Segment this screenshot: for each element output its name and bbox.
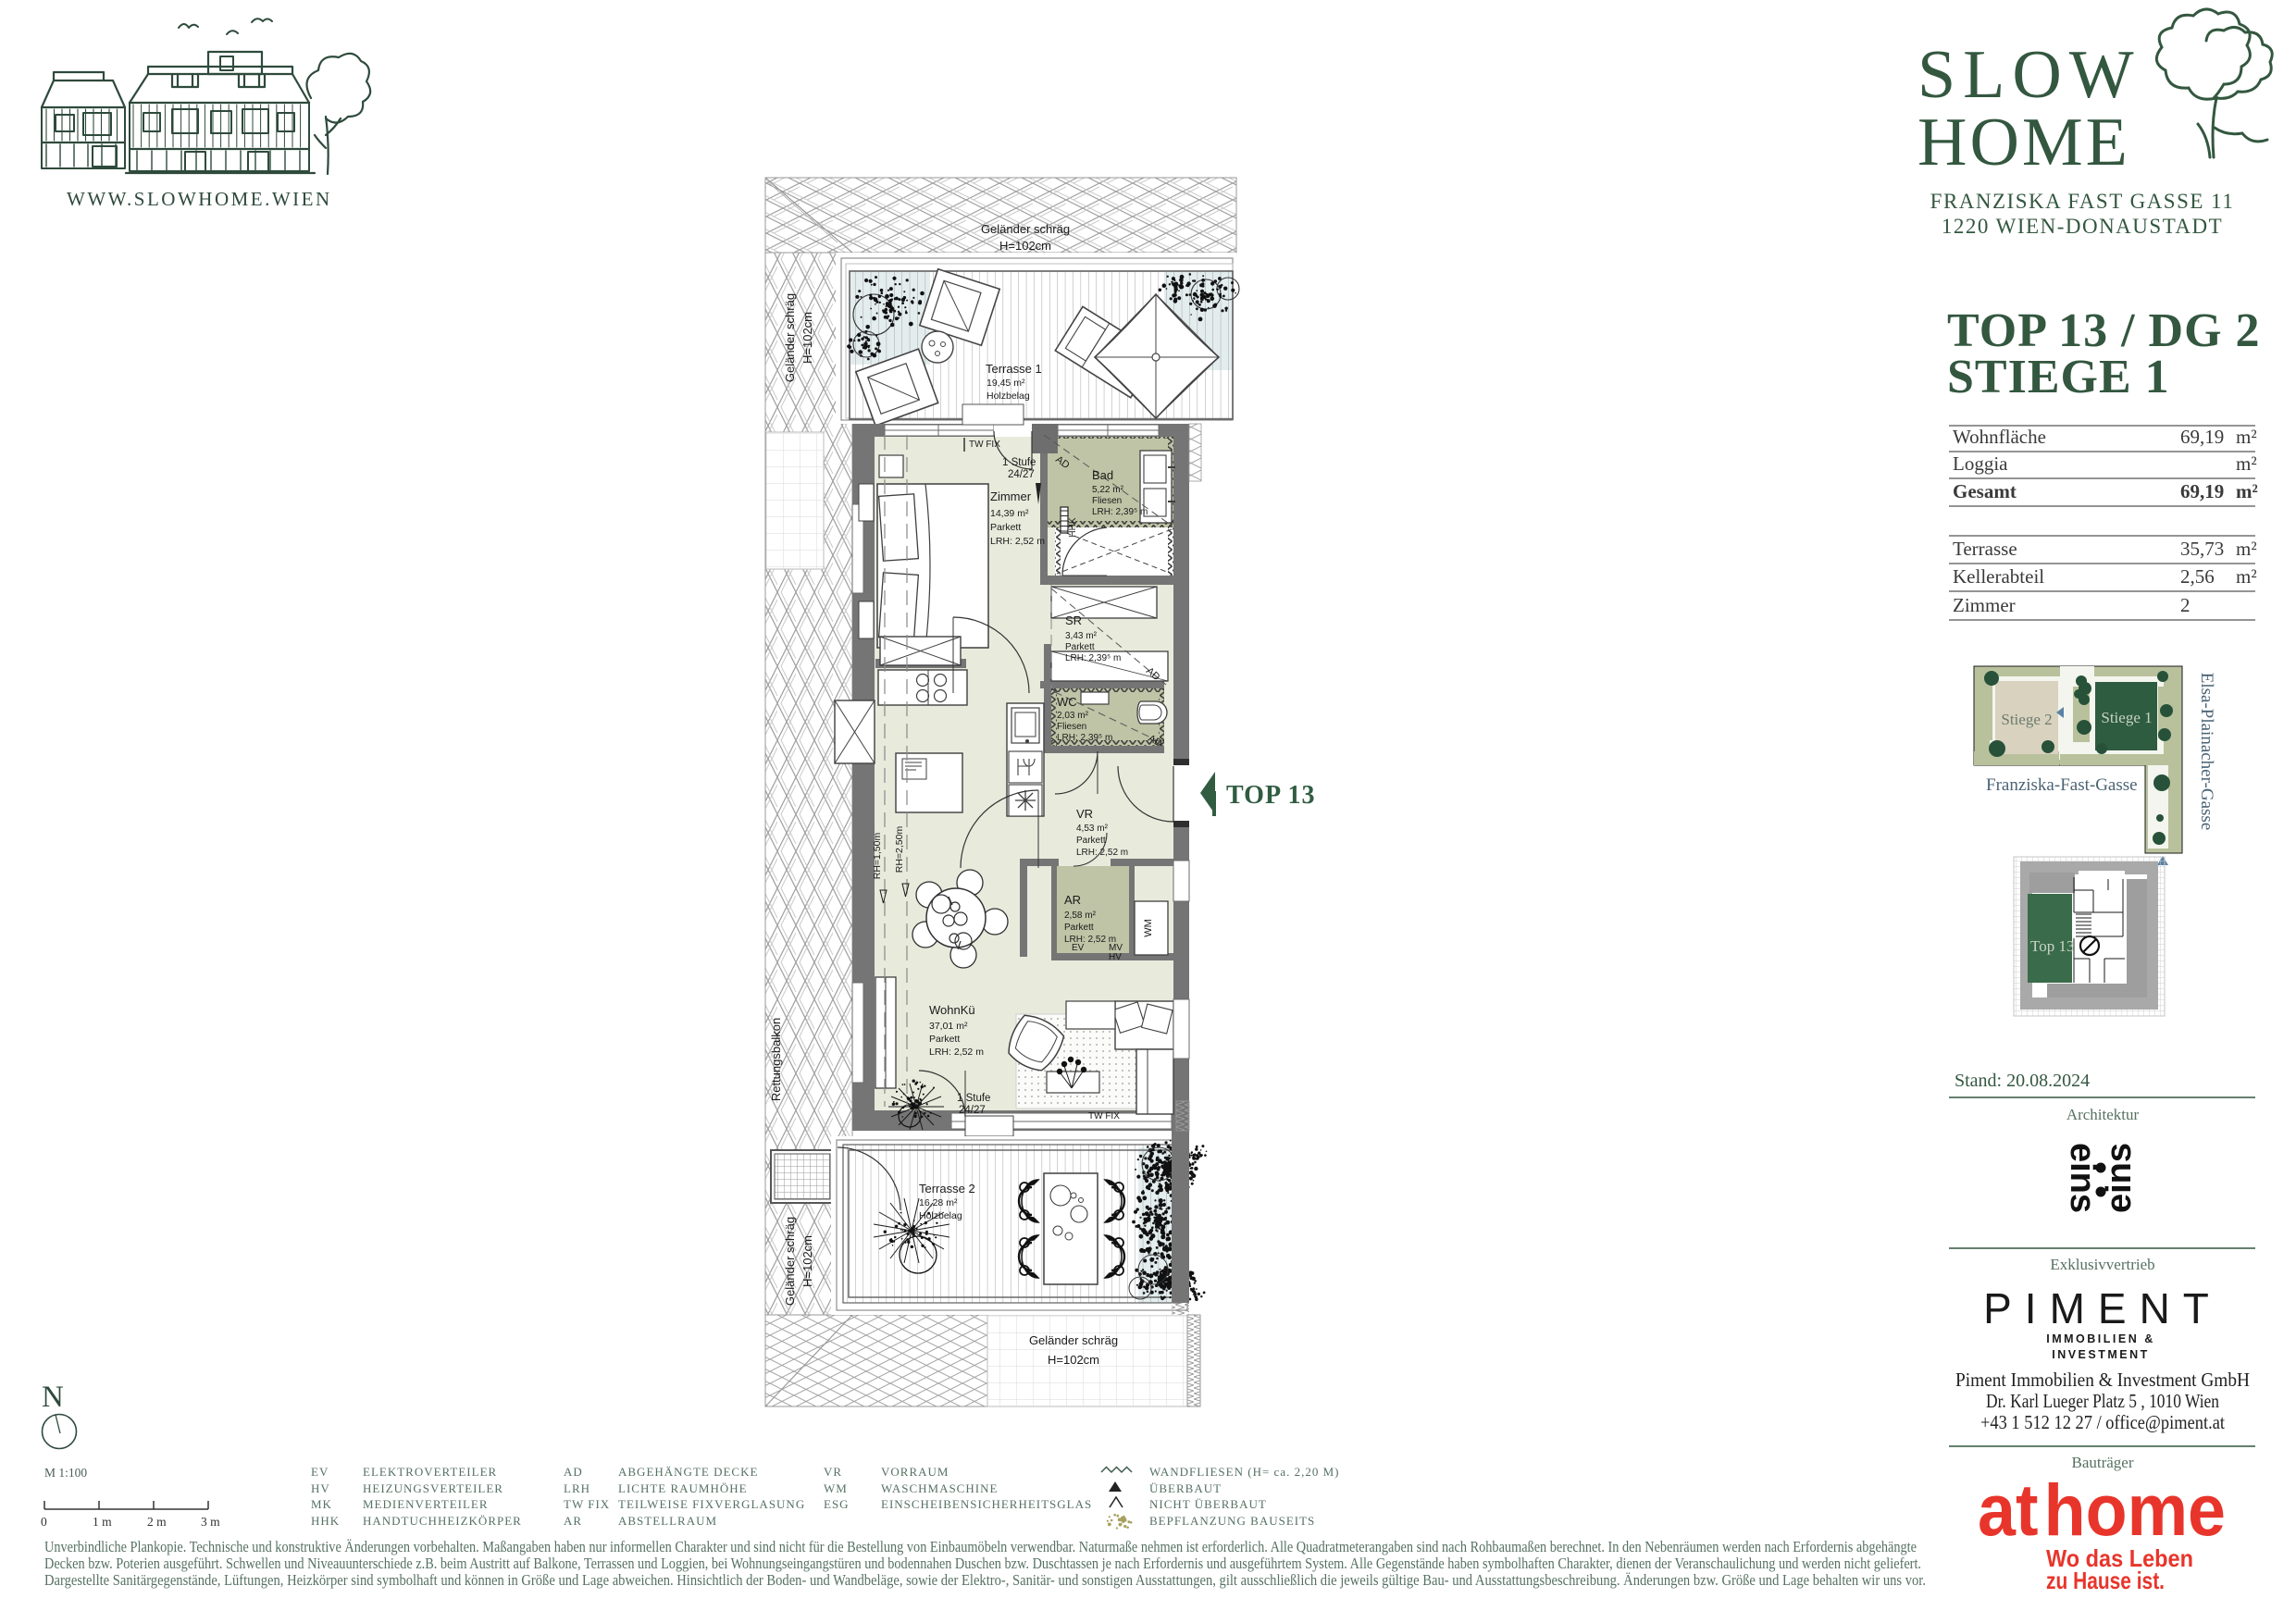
svg-text:LRH: 2,52 m: LRH: 2,52 m — [929, 1047, 984, 1058]
svg-text:1220 WIEN-DONAUSTADT: 1220 WIEN-DONAUSTADT — [1942, 215, 2223, 238]
svg-text:Stiege 2: Stiege 2 — [2001, 711, 2052, 728]
svg-text:Fliesen: Fliesen — [1092, 496, 1122, 506]
svg-text:24/27: 24/27 — [1008, 469, 1035, 480]
svg-text:Piment Immobilien & Investment: Piment Immobilien & Investment GmbH — [1955, 1369, 2250, 1391]
svg-text:Decken bzw. Poterien ausgeführ: Decken bzw. Poterien ausgeführt. Schwell… — [44, 1555, 1921, 1572]
svg-text:ELEKTROVERTEILER: ELEKTROVERTEILER — [363, 1465, 497, 1479]
svg-text:3,43 m²: 3,43 m² — [1065, 631, 1098, 641]
svg-text:WohnKü: WohnKü — [929, 1003, 975, 1017]
svg-text:BEPFLANZUNG BAUSEITS: BEPFLANZUNG BAUSEITS — [1149, 1514, 1315, 1528]
svg-text:WM: WM — [1143, 919, 1154, 937]
svg-text:LICHTE RAUMHÖHE: LICHTE RAUMHÖHE — [618, 1481, 748, 1495]
svg-text:INVESTMENT: INVESTMENT — [2052, 1348, 2150, 1361]
svg-text:Dr. Karl Lueger Platz 5 , 1010: Dr. Karl Lueger Platz 5 , 1010 Wien — [1986, 1390, 2219, 1412]
svg-text:2: 2 — [2180, 594, 2191, 616]
svg-text:H=102cm: H=102cm — [1048, 1353, 1099, 1367]
svg-text:SLOW: SLOW — [1917, 37, 2141, 113]
svg-text:HV: HV — [1109, 952, 1122, 962]
svg-text:MEDIENVERTEILER: MEDIENVERTEILER — [363, 1497, 489, 1511]
svg-text:Parkett: Parkett — [1065, 642, 1095, 652]
svg-text:LRH: 2,39⁵ m: LRH: 2,39⁵ m — [1065, 653, 1121, 663]
svg-text:Elsa-Plainacher-Gasse: Elsa-Plainacher-Gasse — [2197, 673, 2216, 831]
svg-text:Zimmer: Zimmer — [1953, 594, 2016, 616]
svg-text:Exklusivvertrieb: Exklusivvertrieb — [2050, 1256, 2154, 1273]
svg-text:69,19: 69,19 — [2180, 480, 2224, 502]
svg-text:H=102cm: H=102cm — [999, 239, 1051, 253]
svg-text:Parkett: Parkett — [929, 1034, 960, 1045]
svg-text:19,45 m²: 19,45 m² — [987, 378, 1025, 389]
svg-text:Gesamt: Gesamt — [1953, 480, 2017, 502]
svg-text:LRH: 2,39⁵ m: LRH: 2,39⁵ m — [1092, 507, 1148, 517]
svg-text:WM: WM — [824, 1481, 848, 1495]
svg-text:VORRAUM: VORRAUM — [881, 1465, 949, 1479]
svg-text:WASCHMASCHINE: WASCHMASCHINE — [881, 1481, 998, 1495]
svg-text:NICHT ÜBERBAUT: NICHT ÜBERBAUT — [1149, 1497, 1267, 1511]
svg-text:2,56: 2,56 — [2180, 565, 2215, 588]
svg-text:14,39 m²: 14,39 m² — [990, 508, 1029, 519]
svg-text:HHK: HHK — [1068, 517, 1078, 537]
svg-text:Unverbindliche Plankopie. Tech: Unverbindliche Plankopie. Technische und… — [44, 1538, 1917, 1555]
svg-text:m²: m² — [2236, 426, 2257, 448]
svg-text:Top 13: Top 13 — [2030, 937, 2074, 955]
svg-text:4,53 m²: 4,53 m² — [1076, 824, 1109, 834]
svg-text:EV: EV — [1072, 943, 1085, 953]
svg-text:TW FIX: TW FIX — [969, 440, 1000, 450]
svg-text:Zimmer: Zimmer — [990, 489, 1032, 503]
svg-text:ÜBERBAUT: ÜBERBAUT — [1149, 1481, 1222, 1495]
svg-text:1 m: 1 m — [93, 1515, 112, 1529]
svg-text:Franziska-Fast-Gasse: Franziska-Fast-Gasse — [1986, 775, 2138, 795]
svg-text:HHK: HHK — [311, 1514, 340, 1528]
svg-text:Wohnfläche: Wohnfläche — [1953, 426, 2046, 448]
svg-text:SR: SR — [1065, 613, 1082, 627]
svg-text:3 m: 3 m — [201, 1515, 220, 1529]
svg-text:2,03 m²: 2,03 m² — [1057, 711, 1089, 721]
svg-text:TW FIX: TW FIX — [564, 1497, 610, 1511]
svg-text:VR: VR — [1076, 807, 1093, 821]
svg-text:M 1:100: M 1:100 — [44, 1466, 87, 1480]
svg-text:Stand: 20.08.2024: Stand: 20.08.2024 — [1955, 1071, 2090, 1091]
svg-text:Parkett: Parkett — [1076, 836, 1106, 846]
svg-text:WANDFLIESEN (H= ca. 2,20 M): WANDFLIESEN (H= ca. 2,20 M) — [1149, 1465, 1339, 1479]
svg-text:Geländer schräg: Geländer schräg — [1029, 1333, 1118, 1347]
svg-text:Loggia: Loggia — [1953, 452, 2008, 475]
svg-text:PIMENT: PIMENT — [1983, 1284, 2222, 1332]
svg-text:Terrasse 2: Terrasse 2 — [919, 1182, 975, 1196]
svg-text:HOME: HOME — [1917, 105, 2130, 180]
svg-text:ESG: ESG — [824, 1497, 850, 1511]
svg-text:WC: WC — [1057, 695, 1077, 709]
svg-text:16,28 m²: 16,28 m² — [919, 1197, 958, 1208]
svg-text:Geländer schräg: Geländer schräg — [981, 222, 1070, 236]
svg-text:HEIZUNGSVERTEILER: HEIZUNGSVERTEILER — [363, 1481, 503, 1495]
svg-text:EV: EV — [311, 1465, 329, 1479]
svg-text:Parkett: Parkett — [1064, 923, 1094, 933]
svg-text:Geländer schräg: Geländer schräg — [783, 293, 797, 382]
svg-text:m²: m² — [2236, 565, 2257, 588]
svg-text:IMMOBILIEN &: IMMOBILIEN & — [2046, 1332, 2155, 1345]
svg-text:at home: at home — [1978, 1468, 2226, 1551]
svg-text:Rettungsbalkon: Rettungsbalkon — [769, 1018, 783, 1101]
svg-text:HANDTUCHHEIZKÖRPER: HANDTUCHHEIZKÖRPER — [363, 1514, 522, 1528]
svg-text:ABGEHÄNGTE DECKE: ABGEHÄNGTE DECKE — [618, 1465, 758, 1479]
svg-text:STIEGE 1: STIEGE 1 — [1947, 351, 2170, 403]
svg-text:LRH: LRH — [564, 1481, 590, 1495]
svg-text:eins: eins — [2063, 1143, 2102, 1213]
svg-text:1 Stufe: 1 Stufe — [1002, 457, 1036, 468]
svg-text:eins: eins — [2100, 1143, 2139, 1213]
svg-text:VR: VR — [824, 1465, 842, 1479]
svg-text:Holzbelag: Holzbelag — [919, 1210, 962, 1221]
svg-text:zu Hause ist.: zu Hause ist. — [2046, 1567, 2165, 1594]
svg-text:Bad: Bad — [1092, 468, 1113, 482]
svg-text:5,22 m²: 5,22 m² — [1092, 485, 1124, 495]
svg-text:Geländer schräg: Geländer schräg — [783, 1217, 797, 1306]
svg-text:Architektur: Architektur — [2066, 1106, 2140, 1123]
svg-text:MK: MK — [311, 1497, 332, 1511]
svg-text:1 Stufe: 1 Stufe — [957, 1093, 990, 1104]
svg-text:m²: m² — [2236, 480, 2258, 502]
svg-text:0: 0 — [41, 1515, 47, 1529]
svg-text:TW FIX: TW FIX — [1088, 1111, 1120, 1121]
svg-text:HV: HV — [311, 1481, 330, 1495]
svg-text:Parkett: Parkett — [990, 522, 1021, 533]
svg-text:TOP 13 / DG 2: TOP 13 / DG 2 — [1947, 304, 2261, 357]
svg-text:m²: m² — [2236, 538, 2257, 560]
svg-text:N: N — [42, 1381, 64, 1414]
svg-text:Terrasse: Terrasse — [1953, 538, 2017, 560]
svg-text:Fliesen: Fliesen — [1057, 722, 1086, 732]
svg-text:37,01 m²: 37,01 m² — [929, 1021, 968, 1032]
svg-text:+43 1 512 12 27 / office@pimen: +43 1 512 12 27 / office@piment.at — [1980, 1411, 2225, 1433]
svg-text:TOP 13: TOP 13 — [1226, 781, 1316, 810]
svg-text:ABSTELLRAUM: ABSTELLRAUM — [618, 1514, 717, 1528]
svg-text:Terrasse 1: Terrasse 1 — [986, 362, 1042, 376]
svg-text:Holzbelag: Holzbelag — [987, 390, 1030, 402]
svg-text:FRANZISKA FAST GASSE 11: FRANZISKA FAST GASSE 11 — [1930, 190, 2235, 213]
svg-text:LRH: 2,52 m: LRH: 2,52 m — [1076, 848, 1128, 858]
svg-text:LRH: 2,52 m: LRH: 2,52 m — [990, 536, 1045, 547]
svg-text:Stiege 1: Stiege 1 — [2101, 709, 2152, 726]
svg-text:35,73: 35,73 — [2180, 538, 2224, 560]
svg-text:2,58 m²: 2,58 m² — [1064, 911, 1097, 921]
svg-text:H=102cm: H=102cm — [800, 312, 814, 364]
svg-text:TEILWEISE FIXVERGLASUNG: TEILWEISE FIXVERGLASUNG — [618, 1497, 805, 1511]
svg-text:2 m: 2 m — [147, 1515, 167, 1529]
svg-text:24/27: 24/27 — [959, 1105, 986, 1116]
svg-text:69,19: 69,19 — [2180, 426, 2224, 448]
svg-text:AR: AR — [564, 1514, 582, 1528]
svg-text:AR: AR — [1064, 893, 1081, 907]
svg-text:H=102cm: H=102cm — [800, 1235, 814, 1287]
svg-text:EINSCHEIBENSICHERHEITSGLAS: EINSCHEIBENSICHERHEITSGLAS — [881, 1497, 1092, 1511]
svg-text:AD: AD — [564, 1465, 583, 1479]
svg-text:Kellerabteil: Kellerabteil — [1953, 565, 2044, 588]
svg-text:WWW.SLOWHOME.WIEN: WWW.SLOWHOME.WIEN — [67, 188, 332, 210]
svg-text:Dargestellte Sanitärgegenständ: Dargestellte Sanitärgegenstände, Lüftung… — [44, 1571, 1926, 1589]
svg-text:LRH: 2,39⁵ m: LRH: 2,39⁵ m — [1057, 733, 1112, 743]
svg-text:m²: m² — [2236, 452, 2257, 475]
svg-text:RH=2,50m: RH=2,50m — [894, 826, 905, 873]
svg-text:RH=1,50m: RH=1,50m — [872, 833, 883, 880]
